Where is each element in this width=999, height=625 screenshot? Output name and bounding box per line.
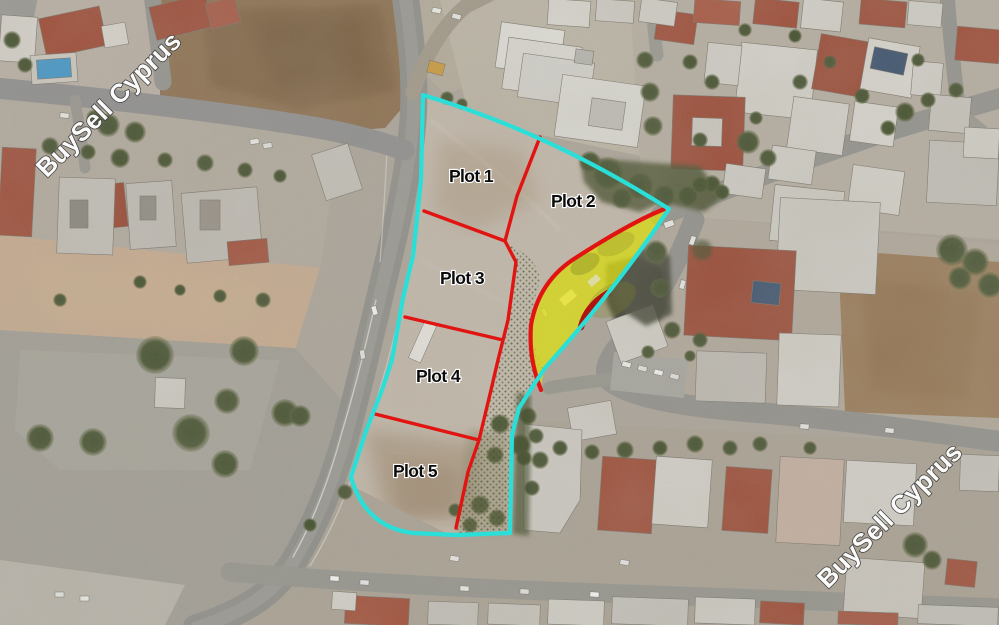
svg-text:Plot 1: Plot 1 bbox=[449, 166, 494, 186]
svg-text:Plot 2: Plot 2 bbox=[551, 191, 596, 211]
svg-text:Plot 3: Plot 3 bbox=[440, 268, 485, 288]
svg-text:Plot 5: Plot 5 bbox=[393, 461, 438, 481]
svg-text:Plot 4: Plot 4 bbox=[416, 366, 461, 386]
